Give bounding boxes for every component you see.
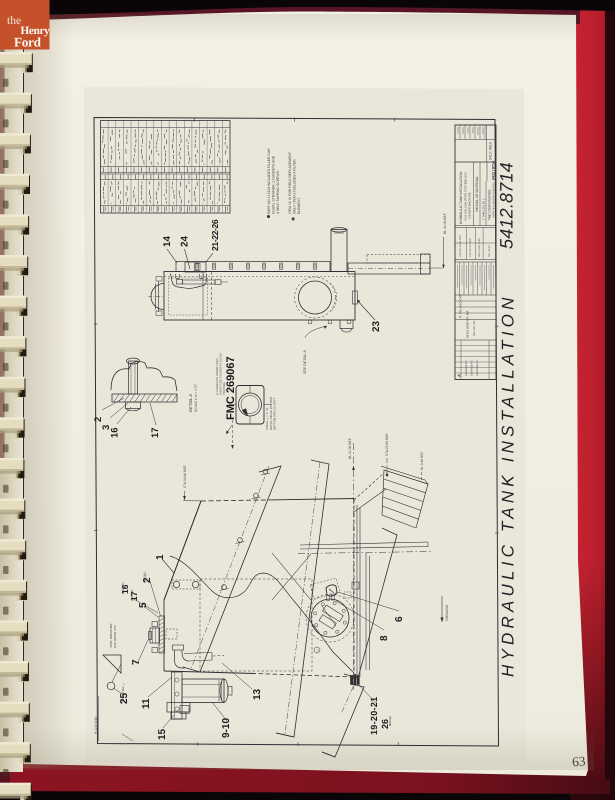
- svg-text:ITEM 16 IS FOR FIELD REPLACEME: ITEM 16 IS FOR FIELD REPLACEMENT: [288, 152, 292, 214]
- svg-text:R. PELUSO CPA: R. PELUSO CPA: [459, 295, 463, 319]
- svg-text:54/2/9438 APL: 54/2/9438 APL: [465, 359, 468, 376]
- svg-text:11: 11: [141, 698, 152, 709]
- svg-text:2: 2: [93, 417, 104, 422]
- svg-text:✱REQD: ✱REQD: [389, 716, 392, 726]
- svg-text:RL 31.00 REF: RL 31.00 REF: [443, 213, 447, 234]
- svg-text:LOADER BACKHOE: LOADER BACKHOE: [468, 192, 472, 219]
- svg-text:the: the: [7, 15, 21, 27]
- svg-text:5412 | 8714: 5412 | 8714: [492, 161, 496, 180]
- svg-text:54/2/9438 APL: 54/2/9438 APL: [476, 359, 479, 376]
- svg-text:54121 9438 APL MA: 54121 9438 APL MA: [466, 311, 470, 338]
- svg-text:5412.8714: 5412.8714: [497, 162, 517, 249]
- svg-text:24: 24: [180, 236, 191, 247]
- svg-text:REV APL MA: REV APL MA: [473, 320, 476, 336]
- svg-text:STA 39.88 REF: STA 39.88 REF: [183, 465, 187, 488]
- svg-text:63: 63: [571, 753, 586, 769]
- svg-text:54/2/9438 APL: 54/2/9438 APL: [471, 359, 474, 376]
- svg-text:15: 15: [157, 728, 168, 740]
- svg-text:△REQD: △REQD: [130, 589, 134, 601]
- svg-text:MFG ENG SPEC: MFG ENG SPEC: [478, 238, 481, 257]
- svg-text:✱REQD: ✱REQD: [121, 582, 125, 594]
- svg-text:ELEMENT.: ELEMENT.: [297, 197, 301, 214]
- svg-text:Ford: Ford: [14, 35, 42, 50]
- svg-text:SCALE 4 ½ = 1 FT: SCALE 4 ½ = 1 FT: [194, 383, 198, 412]
- svg-text:STA 23.80 REF: STA 23.80 REF: [385, 433, 389, 456]
- svg-text:7: 7: [131, 659, 142, 665]
- svg-text:-REQD: -REQD: [143, 572, 147, 583]
- svg-text:5: 5: [138, 602, 149, 608]
- svg-text:1" MM 1113 85 1: 1" MM 1113 85 1: [482, 198, 486, 220]
- svg-text:CKD APVD 1953: CKD APVD 1953: [469, 237, 472, 257]
- svg-text:✱: ✱: [291, 217, 297, 221]
- svg-text:FORWARD: FORWARD: [445, 604, 449, 621]
- svg-text:14: 14: [162, 236, 173, 247]
- svg-text:REL 54-12: REL 54-12: [488, 245, 491, 257]
- svg-text:RL 0.38 REF: RL 0.38 REF: [420, 452, 424, 470]
- svg-text:16: 16: [110, 427, 121, 438]
- svg-text:RL 21.00 REF: RL 21.00 REF: [348, 438, 352, 459]
- svg-text:CHAIN, STRAINER, 2 GASKETS AND: CHAIN, STRAINER, 2 GASKETS AND: [272, 155, 276, 214]
- svg-text:23: 23: [371, 321, 382, 332]
- svg-text:P-118 5190: P-118 5190: [94, 717, 98, 734]
- svg-text:FARM MACHINERY DIVISION: FARM MACHINERY DIVISION: [492, 182, 495, 218]
- svg-text:ONLY. ITEM 5 INCLUDES A FILTER: ONLY. ITEM 5 INCLUDES A FILTER: [293, 159, 297, 214]
- svg-text:FMC CORPORATION: FMC CORPORATION: [488, 190, 492, 220]
- svg-text:13: 13: [252, 688, 263, 700]
- svg-text:1: 1: [155, 554, 166, 560]
- svg-text:FMC 269067: FMC 269067: [225, 356, 237, 420]
- svg-text:HYDRAULIC TANK INSTALLATION: HYDRAULIC TANK INSTALLATION: [459, 171, 463, 224]
- svg-text:5412- 9810: 5412- 9810: [489, 142, 493, 160]
- svg-text:19-20-21: 19-20-21: [369, 697, 379, 735]
- svg-text:CAP, DRAIN FTG: CAP, DRAIN FTG: [113, 624, 117, 648]
- svg-text:A: A: [457, 374, 462, 377]
- svg-text:8: 8: [379, 635, 390, 641]
- svg-text:4 SELF-TAPPING SCREWS.: 4 SELF-TAPPING SCREWS.: [276, 170, 280, 214]
- svg-text:PART NO 171324 INCLUDES FILLER: PART NO 171324 INCLUDES FILLER CAP,: [267, 148, 271, 214]
- svg-text:6: 6: [394, 616, 405, 622]
- svg-text:SEE DETAIL A: SEE DETAIL A: [303, 350, 307, 374]
- svg-text:21-22-26: 21-22-26: [210, 219, 220, 251]
- svg-text:17: 17: [150, 427, 161, 438]
- svg-text:DRN 10-13-64 REV: DRN 10-13-64 REV: [459, 235, 462, 257]
- svg-text:BOTTOM DRG CLARITY: BOTTOM DRG CLARITY: [273, 397, 277, 430]
- svg-text:DETAIL A: DETAIL A: [188, 394, 193, 412]
- svg-text:HYDRAULIC TANK INSTALLATION: HYDRAULIC TANK INSTALLATION: [499, 293, 518, 677]
- svg-text:500 BILL OF MATERIAL: 500 BILL OF MATERIAL: [475, 176, 479, 212]
